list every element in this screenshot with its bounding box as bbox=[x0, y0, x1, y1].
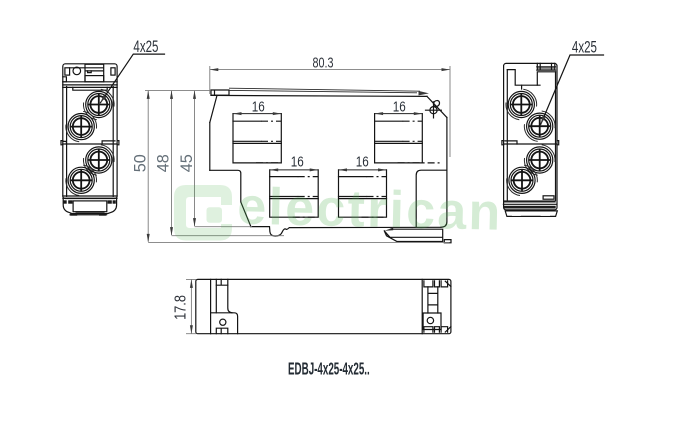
svg-text:80.3: 80.3 bbox=[313, 54, 334, 71]
svg-text:electrican: electrican bbox=[237, 178, 501, 242]
svg-text:16: 16 bbox=[393, 98, 406, 115]
svg-text:16: 16 bbox=[291, 153, 304, 170]
svg-text:16: 16 bbox=[252, 98, 265, 115]
svg-text:48: 48 bbox=[154, 154, 172, 172]
svg-text:16: 16 bbox=[356, 153, 369, 170]
svg-text:50: 50 bbox=[131, 154, 149, 172]
svg-text:4x25: 4x25 bbox=[572, 38, 597, 57]
svg-text:EDBJ-4x25-4x25..: EDBJ-4x25-4x25.. bbox=[288, 359, 370, 379]
svg-text:17.8: 17.8 bbox=[172, 295, 190, 320]
svg-text:45: 45 bbox=[178, 154, 196, 172]
